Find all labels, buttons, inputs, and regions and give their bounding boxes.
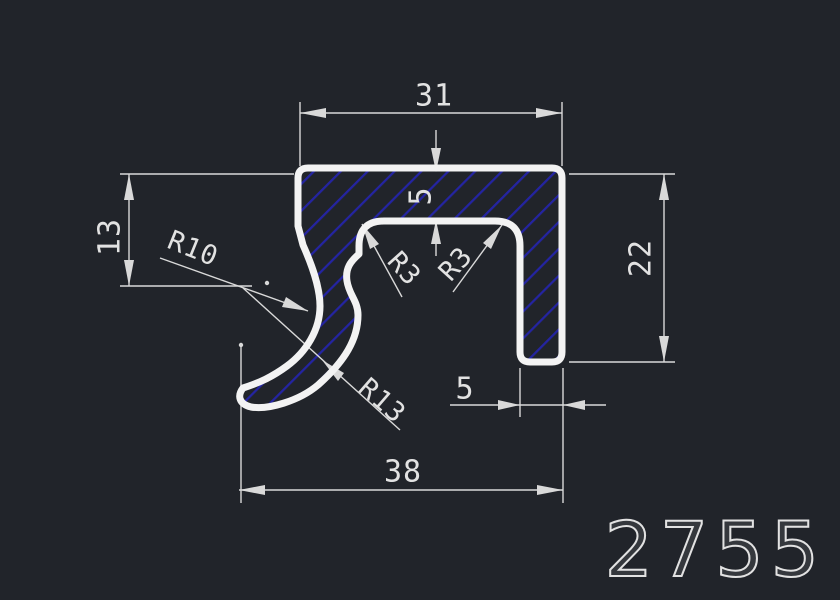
dim-right-height-label: 22 [624,239,659,277]
part-number: 2755 [605,512,826,588]
arc-center-mark-r13 [239,343,243,347]
cad-drawing-canvas: 31 5 13 22 5 38 R10 R3 R3 R13 2755 [0,0,840,600]
dim-bottom-width-label: 38 [384,455,422,490]
dim-top-width-label: 31 [415,79,453,114]
dim-left-height-label: 13 [93,218,128,256]
dim-wall-thickness-label: 5 [404,186,439,205]
dimension-lines [120,102,675,503]
arc-center-mark-r10 [265,281,269,285]
dim-leg-width-label: 5 [455,372,474,407]
